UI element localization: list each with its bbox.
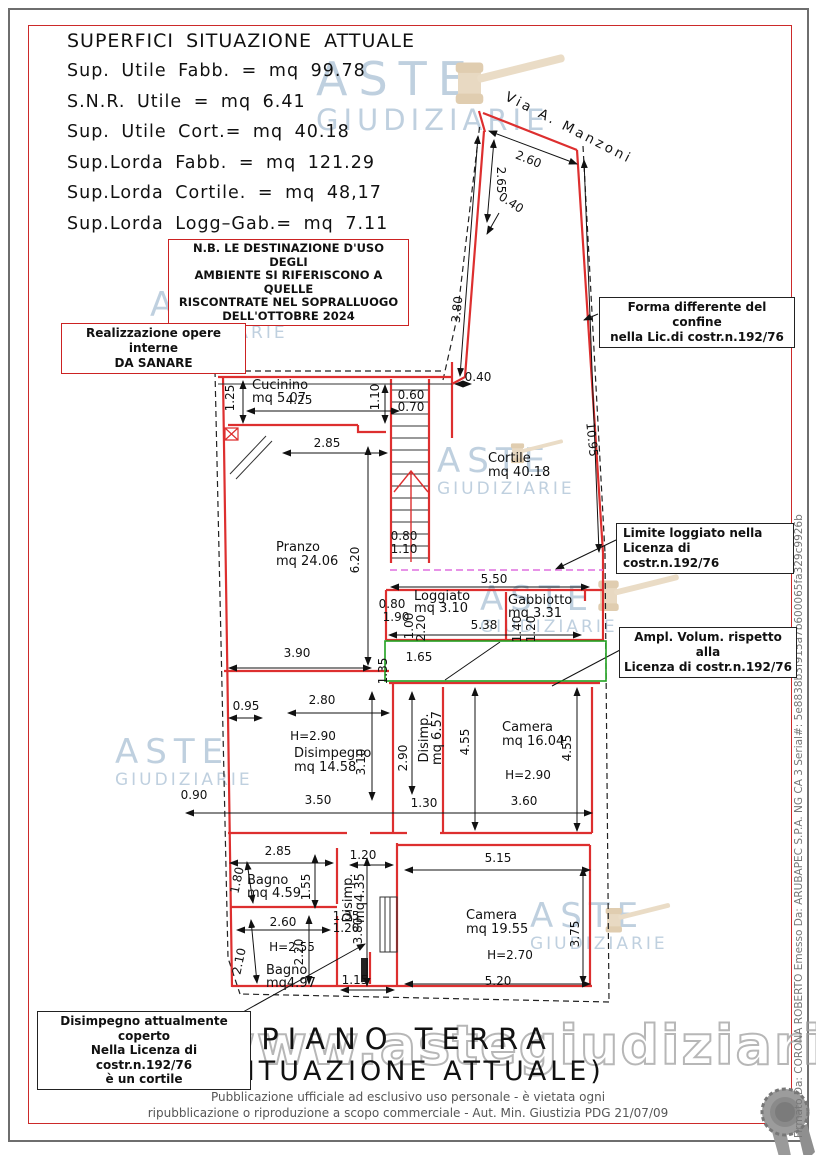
dim-label: 1.10 — [391, 542, 418, 556]
dim-label: 0.40 — [496, 189, 526, 215]
dim-label: 4.55 — [458, 729, 472, 756]
dim-label: 5.38 — [471, 618, 498, 632]
limite-loggiato-box: Limite loggiato nella Licenza di costr.n… — [616, 523, 794, 574]
dim-label: 2.20 — [414, 615, 428, 642]
dim-label: 0.95 — [233, 699, 260, 713]
room-label: mq 14.58 — [294, 760, 356, 775]
dim-label: 5.15 — [485, 851, 512, 865]
nb-line: N.B. LE DESTINAZIONE D'USO DEGLI — [172, 242, 405, 269]
dim-label: 2.60 — [513, 148, 543, 171]
dim-label: 1.20 — [350, 848, 377, 862]
corner-hatch — [225, 428, 238, 440]
dim-label: 10.95 — [583, 422, 601, 458]
dim-label: 2.85 — [314, 436, 341, 450]
forma-confine-box: Forma differente del confine nella Lic.d… — [599, 297, 795, 348]
gavel-icon — [598, 574, 679, 611]
dim-label: 5.20 — [485, 974, 512, 988]
dim-label: 1.15 — [342, 973, 369, 987]
forma-line: Forma differente del confine — [603, 300, 791, 330]
room-label: mq4.97 — [266, 976, 316, 991]
surface-line: Sup.Lorda Cortile. = mq 48,17 — [67, 183, 415, 203]
nb-line: DELL'OTTOBRE 2024 — [172, 310, 405, 324]
dim-label: 0.80 — [391, 529, 418, 543]
opere-line: Realizzazione opere interne — [65, 326, 242, 356]
dim-label: 2.65 — [494, 167, 508, 194]
limite-line: Limite loggiato nella — [623, 526, 790, 541]
limite-line: Licenza di costr.n.192/76 — [623, 541, 790, 571]
dim-label: 1.10 — [368, 384, 382, 411]
dim-label: H=2.70 — [487, 948, 533, 962]
nb-line: RISCONTRATE NEL SOPRALLUOGO — [172, 296, 405, 310]
coperto-line: Disimpegno attualmente coperto — [41, 1014, 247, 1043]
footer-disclaimer-line1: Pubblicazione ufficiale ad esclusivo uso… — [0, 1090, 816, 1104]
dim-label: 0.80 — [379, 597, 406, 611]
dim-label: 2.20 — [292, 939, 306, 966]
surface-summary-title: SUPERFICI SITUAZIONE ATTUALE — [67, 30, 415, 52]
opere-line: DA SANARE — [65, 356, 242, 371]
dim-label: 2.60 — [270, 915, 297, 929]
nb-line: AMBIENTE SI RIFERISCONO A QUELLE — [172, 269, 405, 296]
opere-note-box: Realizzazione opere interne DA SANARE — [61, 323, 246, 374]
dim-label: 1.65 — [406, 650, 433, 664]
room-label: mq 19.55 — [466, 922, 528, 937]
surface-line: Sup. Utile Fabb. = mq 99.78 — [67, 61, 415, 81]
room-label: mq 16.04 — [502, 734, 564, 749]
footer-disclaimer-line2: ripubblicazione o riproduzione a scopo c… — [0, 1106, 816, 1120]
dim-label: 2.85 — [265, 844, 292, 858]
dim-label: 2.90 — [396, 745, 410, 772]
dim-label: 6.20 — [348, 547, 362, 574]
room-label: mq 6.57 — [430, 711, 445, 765]
room-label: Pranzo — [276, 540, 320, 555]
room-label: mq 3.31 — [508, 606, 562, 621]
gavel-icon — [606, 903, 671, 933]
coperto-line: Nella Licenza di costr.n.192/76 — [41, 1043, 247, 1072]
dim-label: 1.55 — [299, 874, 313, 901]
coperto-line: è un cortile — [41, 1072, 247, 1087]
dim-label: 0.40 — [465, 370, 492, 384]
dim-label: 1.25 — [223, 385, 237, 412]
surface-line: Sup. Utile Cort.= mq 40.18 — [67, 122, 415, 142]
dim-label: 5.50 — [481, 572, 508, 586]
ampl-line: Ampl. Volum. rispetto alla — [623, 630, 793, 660]
room-label: Camera — [466, 908, 517, 923]
nb-note-box: N.B. LE DESTINAZIONE D'USO DEGLI AMBIENT… — [168, 239, 409, 326]
room-label: mq 3.10 — [414, 601, 468, 616]
dim-label: 0.70 — [398, 400, 425, 414]
disimpegno-coperto-box: Disimpegno attualmente coperto Nella Lic… — [37, 1011, 251, 1090]
ampl-line: Licenza di costr.n.192/76 — [623, 660, 793, 675]
dim-label: 0.90 — [181, 788, 208, 802]
room-label: Cortile — [488, 451, 531, 466]
room-label: mq4.35 — [353, 873, 368, 923]
room-label: Disimpegno — [294, 746, 371, 761]
forma-line: nella Lic.di costr.n.192/76 — [603, 330, 791, 345]
ampliamento-volume-box: Ampl. Volum. rispetto alla Licenza di co… — [619, 627, 797, 678]
door-symbol — [380, 897, 397, 952]
room-label: mq 24.06 — [276, 554, 338, 569]
room-label: mq 40.18 — [488, 465, 550, 480]
dim-label: 3.80 — [449, 296, 466, 324]
surface-line: S.N.R. Utile = mq 6.41 — [67, 92, 415, 112]
room-label: mq 5.07 — [252, 391, 306, 406]
dim-label: 3.75 — [568, 921, 582, 948]
room-label: Camera — [502, 720, 553, 735]
dim-label: 1.35 — [376, 658, 390, 685]
dim-label: H=2.90 — [290, 729, 336, 743]
surface-line: Sup.Lorda Fabb. = mq 121.29 — [67, 153, 415, 173]
dim-label: 1.30 — [411, 796, 438, 810]
scanned-floor-plan-page: ASTE GIUDIZIARIE ASTE GIUDIZIARIE ASTE G… — [0, 0, 816, 1155]
room-label: mq 4.59 — [247, 886, 301, 901]
small-arrow-leader — [487, 213, 499, 234]
dim-label: 3.60 — [511, 794, 538, 808]
surface-summary: SUPERFICI SITUAZIONE ATTUALE Sup. Utile … — [67, 30, 415, 244]
dim-label: 3.50 — [305, 793, 332, 807]
dim-label: H=2.90 — [505, 768, 551, 782]
surface-line: Sup.Lorda Logg–Gab.= mq 7.11 — [67, 214, 415, 234]
dim-label: 2.80 — [309, 693, 336, 707]
dim-label: 3.90 — [284, 646, 311, 660]
